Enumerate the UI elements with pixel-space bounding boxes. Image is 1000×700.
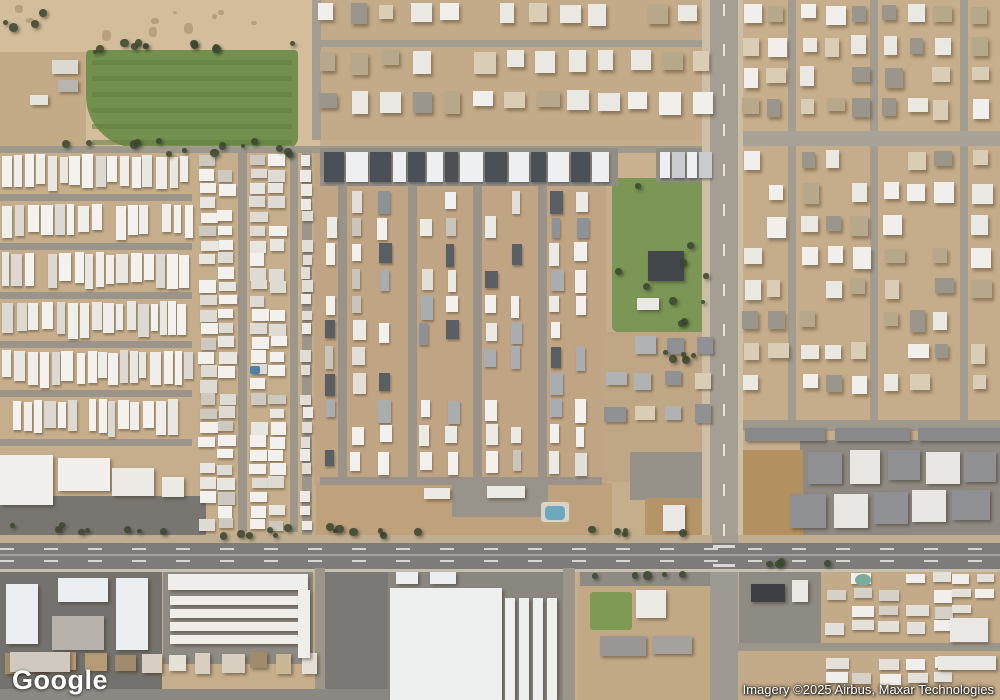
street <box>788 146 796 423</box>
trailer-roof <box>85 254 92 289</box>
right-houses <box>802 152 815 168</box>
right-houses <box>910 38 923 55</box>
mid-strip-trailers <box>301 437 310 448</box>
trailer-roof <box>2 206 12 238</box>
park-street <box>0 243 192 250</box>
bottom-right-trailers <box>952 574 969 584</box>
crosswalk <box>713 564 735 567</box>
storage-units-row <box>672 152 685 178</box>
mid-strip-trailers <box>219 518 233 527</box>
mid-strip-trailers <box>199 519 215 531</box>
center-park-trailers <box>486 424 498 445</box>
right-houses <box>825 38 839 57</box>
mid-strip-trailers <box>219 282 236 291</box>
trailer-roof <box>116 206 127 240</box>
desert-debris <box>184 23 193 33</box>
right-houses <box>935 344 948 358</box>
tree-canopy <box>635 183 641 189</box>
google-logo[interactable]: Google <box>12 665 108 696</box>
mid-strip-trailers <box>268 450 282 460</box>
desert-debris <box>212 14 217 20</box>
center-park-trailers <box>549 451 558 474</box>
right-houses <box>907 184 925 201</box>
mid-strip-trailers <box>218 252 233 263</box>
trailer-roof <box>139 205 148 234</box>
apartment-building <box>926 452 960 484</box>
bottom-right-trailers <box>933 572 951 582</box>
center-park-trailers <box>421 400 430 417</box>
mid-strip-trailers <box>250 212 267 222</box>
right-houses <box>883 215 902 235</box>
mid-strip-trailers <box>217 465 231 475</box>
mid-strip-trailers <box>269 269 284 282</box>
mid-strip-trailers <box>198 437 214 447</box>
park-street <box>0 292 192 299</box>
trailer-roof <box>168 399 178 435</box>
main-road <box>0 543 1000 569</box>
trailer-roof <box>2 252 9 285</box>
center-park-trailers <box>448 401 460 424</box>
right-houses <box>769 185 783 201</box>
park-street <box>538 184 547 480</box>
right-houses <box>885 249 905 263</box>
school-field <box>590 592 632 630</box>
field-rows <box>92 124 292 129</box>
right-houses <box>744 4 762 23</box>
mid-strip-trailers <box>200 183 216 193</box>
right-houses <box>800 66 814 85</box>
trailer-roof <box>68 400 77 430</box>
bottom-right-trailers <box>827 590 846 600</box>
trailer-roof <box>11 254 22 286</box>
right-houses <box>744 151 760 170</box>
community-pool <box>250 366 260 374</box>
trailer-roof <box>108 401 115 436</box>
school-building <box>600 636 646 656</box>
trailer-roof <box>69 156 80 185</box>
bottom-right-trailers <box>906 574 926 583</box>
mid-strip-trailers <box>303 255 313 266</box>
right-houses <box>766 68 785 82</box>
mid-strip-trailers <box>250 519 265 529</box>
street <box>312 40 710 47</box>
bottom-right-trailers <box>907 622 925 634</box>
tree-canopy <box>681 352 686 357</box>
center-park-trailers <box>378 452 389 475</box>
green-lot-south-sheds <box>634 373 651 390</box>
trailer-roof <box>82 154 93 188</box>
right-houses <box>971 280 992 298</box>
street <box>315 568 325 700</box>
trailer-roof <box>130 351 138 384</box>
trailer-roof <box>41 205 53 235</box>
storage-units-row <box>592 152 609 182</box>
trailer-roof <box>167 254 178 289</box>
right-houses <box>768 311 785 329</box>
center-park-trailers <box>446 244 454 267</box>
right-houses <box>935 278 954 293</box>
mid-strip-trailers <box>249 196 264 207</box>
center-park-trailers <box>551 270 563 291</box>
mid-strip-trailers <box>268 365 284 377</box>
mid-strip-trailers <box>252 309 269 321</box>
right-houses <box>742 311 758 330</box>
street <box>563 568 575 700</box>
mid-strip-trailers <box>200 422 217 434</box>
trailer-roof <box>88 351 97 383</box>
center-park-trailers <box>353 373 366 394</box>
street <box>960 146 968 423</box>
mid-strip-trailers <box>270 437 285 449</box>
shopping-center-roof <box>112 468 154 496</box>
road-shoulder <box>738 0 743 543</box>
mid-strip-trailers <box>270 310 285 321</box>
mid-strip-trailers <box>217 449 233 459</box>
trailer-roof <box>143 401 154 428</box>
park-building <box>648 251 684 281</box>
trailer-roof <box>127 301 136 330</box>
industrial-roof <box>52 616 104 650</box>
right-houses <box>850 278 865 294</box>
center-park-trailers <box>422 269 433 290</box>
center-park-trailers <box>576 347 585 371</box>
tree-canopy <box>679 571 686 578</box>
mid-strip-trailers <box>300 506 310 515</box>
shed <box>487 486 525 498</box>
trailer-roof <box>48 254 58 289</box>
school-building <box>636 590 666 618</box>
center-park-trailers <box>551 347 561 368</box>
center-park-trailers <box>448 452 459 475</box>
top-center-houses <box>413 92 432 114</box>
storage-units-row <box>548 152 569 182</box>
center-park-trailers <box>485 400 497 421</box>
trailer-roof <box>132 157 141 189</box>
tree-canopy <box>267 527 274 534</box>
top-center-houses <box>588 4 606 26</box>
mid-strip-trailers <box>219 184 236 197</box>
yard-shed <box>663 505 685 531</box>
field-rows <box>92 108 292 113</box>
park-street <box>473 184 482 480</box>
center-park-trailers <box>379 323 389 343</box>
tree-canopy <box>824 560 831 567</box>
mid-strip-trailers <box>198 352 214 363</box>
storage-row <box>170 635 302 644</box>
top-center-houses <box>500 3 515 23</box>
trailer-roof <box>89 399 96 431</box>
trailer-roof <box>151 304 158 331</box>
trailer-roof <box>2 156 12 187</box>
center-park-trailers <box>326 243 334 265</box>
mid-strip-trailers <box>219 295 237 304</box>
storage-units-row <box>485 152 507 182</box>
top-center-houses <box>693 51 709 71</box>
center-park-trailers <box>352 244 360 261</box>
right-houses <box>744 68 758 88</box>
tree-canopy <box>212 45 221 54</box>
top-center-houses <box>659 92 681 115</box>
right-houses <box>852 183 866 203</box>
bottom-right-trailers <box>906 605 928 616</box>
mid-strip-trailers <box>250 378 266 389</box>
top-center-houses <box>351 53 368 75</box>
mid-strip-trailers <box>218 366 235 378</box>
trailer-roof <box>28 352 38 385</box>
trailer-roof <box>96 156 105 187</box>
paved-yard <box>630 452 712 500</box>
center-park-trailers <box>511 346 520 369</box>
center-park-trailers <box>380 270 390 292</box>
center-park-trailers <box>513 450 521 471</box>
satellite-map-canvas[interactable]: Google Imagery ©2025 Airbus, Maxar Techn… <box>0 0 1000 700</box>
storage-units-row <box>393 152 406 182</box>
trailer-roof <box>28 205 39 232</box>
center-park-trailers <box>445 426 457 443</box>
right-houses <box>851 342 866 359</box>
center-park-trailers <box>511 296 519 319</box>
top-center-houses <box>444 91 459 114</box>
right-houses <box>933 248 946 264</box>
mid-strip-trailers <box>250 323 267 334</box>
storage-units-row <box>660 152 670 178</box>
mid-strip-trailers <box>217 210 232 221</box>
tree-canopy <box>284 524 292 532</box>
apartment-row <box>745 428 825 441</box>
trailer-roof <box>14 155 21 186</box>
top-center-houses <box>504 92 525 107</box>
center-park-trailers <box>445 192 456 208</box>
trailer-roof <box>107 156 117 182</box>
trailer-roof <box>168 301 176 335</box>
bottom-right-trailers <box>952 605 971 614</box>
center-park-trailers <box>352 427 363 446</box>
mid-strip-trailers <box>201 338 216 350</box>
industrial-roof <box>116 578 148 650</box>
center-park-trailers <box>421 296 433 320</box>
trailer-roof <box>160 301 167 335</box>
mid-strip-trailers <box>271 336 288 345</box>
tree-canopy <box>778 558 785 565</box>
mid-strip-trailers <box>268 476 284 488</box>
right-houses <box>828 246 843 263</box>
street <box>870 146 878 423</box>
desert-debris <box>251 21 258 25</box>
mid-strip-trailers <box>300 350 311 361</box>
right-houses <box>885 280 899 299</box>
mid-strip-trailers <box>201 213 218 223</box>
right-houses <box>932 67 950 83</box>
center-park-trailers <box>325 320 335 338</box>
trailer-roof <box>44 401 56 428</box>
center-park-trailers <box>512 244 522 265</box>
right-houses <box>852 376 866 395</box>
mid-strip-trailers <box>199 226 216 236</box>
field-rows <box>92 60 292 65</box>
storage-units-row <box>699 152 712 178</box>
center-park-trailers <box>377 218 387 241</box>
apartment-building <box>888 450 920 480</box>
trailer-roof <box>15 205 25 236</box>
center-park-trailers <box>485 271 498 288</box>
vertical-road-south <box>710 568 738 700</box>
trailer-roof <box>130 402 139 431</box>
center-park-trailers <box>552 218 561 238</box>
top-center-houses <box>567 90 589 109</box>
apartment-building <box>964 452 996 482</box>
mid-strip-trailers <box>270 352 284 362</box>
center-park-trailers <box>550 373 563 394</box>
school-block-base <box>578 568 712 700</box>
trailer-roof <box>92 204 102 230</box>
mid-strip-trailers <box>271 422 286 435</box>
trailer-roof <box>60 157 68 184</box>
mid-strip-trailers <box>201 365 217 377</box>
mid-strip-trailers <box>302 211 313 220</box>
right-houses <box>802 247 818 265</box>
mid-strip-trailers <box>200 463 216 473</box>
tree-canopy <box>237 530 245 538</box>
right-houses <box>768 38 787 58</box>
trailer-roof <box>162 204 171 232</box>
top-center-houses <box>319 93 337 109</box>
right-houses <box>908 98 928 112</box>
storage-row <box>170 596 302 605</box>
mid-strip-trailers <box>200 409 217 419</box>
top-center-houses <box>598 50 613 70</box>
top-center-houses <box>569 50 586 72</box>
bottom-row-houses <box>276 654 291 674</box>
green-lot-south-sheds <box>695 373 711 390</box>
mid-strip-trailers <box>200 310 217 321</box>
mid-strip-trailers <box>268 154 285 166</box>
mid-strip-trailers <box>218 309 234 318</box>
mid-strip-trailers <box>300 491 309 502</box>
right-houses <box>852 6 866 22</box>
trailer-roof <box>156 401 167 435</box>
right-houses <box>933 312 947 330</box>
bottom-right-trailers <box>825 623 844 635</box>
bottom-right-trailers <box>908 673 929 683</box>
tree-canopy <box>682 356 690 364</box>
street <box>870 0 878 131</box>
mid-strip-trailers <box>220 394 236 405</box>
trailer-roof <box>57 302 65 335</box>
road-shoulder <box>702 0 710 543</box>
center-park-trailers <box>512 191 520 213</box>
mid-strip-trailers <box>302 311 312 320</box>
trailer-roof <box>156 254 165 288</box>
mid-strip-trailers <box>301 184 312 196</box>
right-houses <box>973 150 988 165</box>
bottom-right-trailers <box>852 606 874 617</box>
apartment-building <box>952 490 990 520</box>
mid-strip-trailers <box>270 239 284 250</box>
farm-shed <box>52 60 78 74</box>
mid-strip-trailers <box>302 240 313 252</box>
shed <box>424 488 450 499</box>
top-center-houses <box>507 50 524 67</box>
trailer-roof <box>185 205 193 237</box>
trailer-roof <box>75 252 84 283</box>
park-street <box>0 439 192 446</box>
mid-strip-trailers <box>250 226 265 236</box>
right-houses <box>744 248 761 263</box>
school-building <box>652 636 692 654</box>
mid-strip-trailers <box>250 492 267 501</box>
right-houses <box>934 182 954 203</box>
long-building <box>938 656 996 670</box>
apartment-row <box>918 428 1000 441</box>
storage-units-row <box>445 152 458 182</box>
mid-strip-trailers <box>251 393 266 405</box>
right-houses <box>972 184 993 204</box>
mid-strip-trailers <box>251 422 268 435</box>
right-houses <box>972 37 988 56</box>
trailer-roof <box>116 254 128 283</box>
green-lot-south-sheds <box>695 404 711 422</box>
bottom-row-houses <box>115 655 137 671</box>
mid-strip-trailers <box>251 280 268 289</box>
mid-strip-trailers <box>301 294 312 304</box>
right-houses <box>884 182 899 199</box>
center-park-trailers <box>484 349 496 368</box>
right-houses <box>852 98 870 117</box>
top-center-houses <box>560 5 581 23</box>
trailer-roof <box>99 399 107 433</box>
mid-strip-trailers <box>302 323 311 334</box>
tree-canopy <box>632 572 638 578</box>
tree-canopy <box>219 142 227 150</box>
mid-strip-trailers <box>268 170 285 182</box>
right-houses <box>971 215 988 235</box>
top-center-houses <box>631 50 651 69</box>
bottom-parking-strip <box>318 568 388 700</box>
green-lot-south-sheds <box>665 406 681 420</box>
park-street <box>0 390 192 397</box>
top-center-houses <box>379 5 394 20</box>
shopping-center-roof <box>162 477 184 497</box>
mid-strip-trailers <box>219 323 233 333</box>
tree-canopy <box>703 273 708 278</box>
bottom-row-houses <box>142 654 162 673</box>
trailer-roof <box>34 400 42 432</box>
bottom-right-trailers <box>878 621 899 632</box>
tree-canopy <box>62 140 70 148</box>
right-houses <box>803 374 818 388</box>
mid-strip-trailers <box>251 350 266 363</box>
storage-row <box>170 609 302 618</box>
trailer-roof <box>96 252 103 286</box>
park-shed <box>637 298 659 310</box>
right-houses <box>884 312 898 326</box>
trailer-roof <box>77 353 85 384</box>
park-street <box>0 341 192 348</box>
right-houses <box>853 247 871 268</box>
storage-units-row <box>346 152 368 182</box>
right-houses <box>851 35 867 54</box>
tree-canopy <box>39 9 47 17</box>
road-shoulder <box>738 535 1000 543</box>
mid-strip-trailers <box>200 491 217 503</box>
trailer-roof <box>184 352 193 378</box>
right-houses <box>743 375 758 389</box>
tree-canopy <box>182 148 187 153</box>
mid-strip-trailers <box>218 492 234 505</box>
trailer-roof <box>52 352 60 384</box>
green-lot-south-sheds <box>697 337 713 353</box>
mid-strip-trailers <box>200 380 216 393</box>
